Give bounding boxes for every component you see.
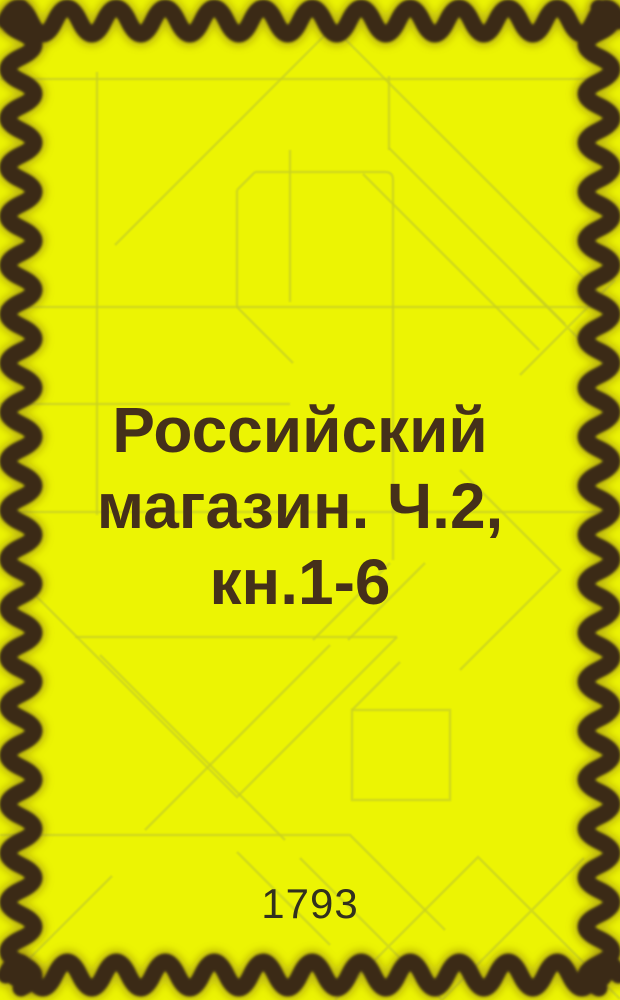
stamp-wavy-border: [0, 0, 620, 1000]
book-cover: Российский магазин. Ч.2, кн.1-6 1793: [0, 0, 620, 1000]
border-halo: [6, 8, 619, 988]
corner-blob-bottom-left: [5, 961, 31, 987]
border-waves: [5, 8, 619, 988]
corner-blob-top-left: [5, 9, 31, 35]
corner-blob-top-right: [587, 9, 613, 35]
corner-blob-bottom-right: [587, 961, 613, 987]
